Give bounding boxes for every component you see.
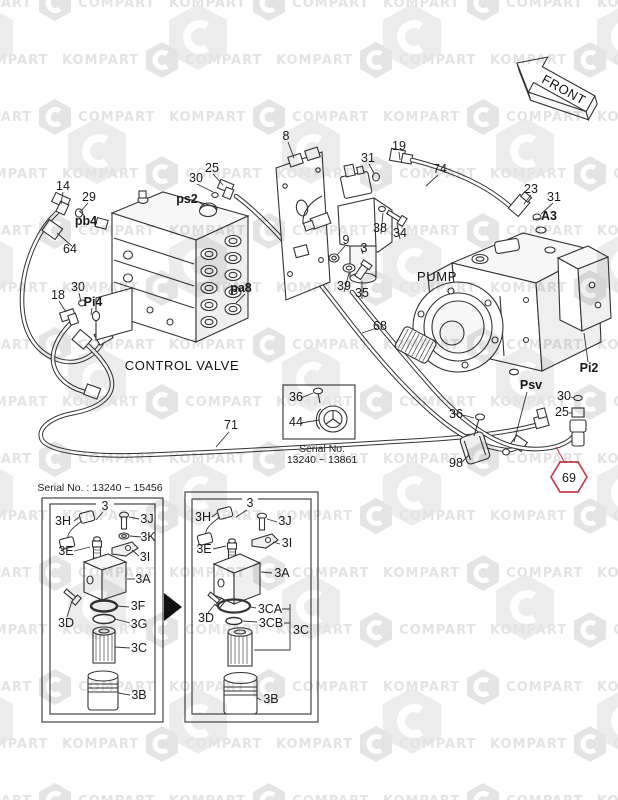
control-valve-drawing [92,179,248,342]
callout-36b: 36 [289,390,303,404]
parts-diagram: FRONT [0,0,618,800]
callout-18: 18 [51,288,65,302]
callout-8: 8 [283,129,290,143]
callout-31b: 31 [547,190,561,204]
port-psv: Psv [520,378,542,392]
box2-label-3b: 3B [263,692,278,706]
callout-68: 68 [373,319,387,333]
callout-98: 98 [449,456,463,470]
box2-label-3: 3 [247,496,254,510]
callout-36a: 36 [449,407,463,421]
port-ps2: ps2 [176,192,198,206]
transition-arrow [164,593,182,621]
pump-caption: PUMP [417,269,457,284]
port-pi4: Pi4 [84,295,103,309]
box2-label-3h: 3H [195,510,211,524]
callout-35: 35 [355,286,369,300]
callout-69: 69 [562,471,576,485]
callout-25a: 25 [205,161,219,175]
callout-30b: 30 [189,171,203,185]
callout-31a: 31 [361,151,375,165]
callout-9: 9 [343,233,350,247]
callout-74: 74 [433,162,447,176]
callout-71: 71 [224,418,238,432]
callout-29: 29 [82,190,96,204]
parts-catalog-page: FRONT [0,0,618,800]
callout-64: 64 [63,242,77,256]
box1-label-3j: 3J [140,512,153,526]
box1-label-3c: 3C [131,641,147,655]
box1-label-3h: 3H [55,514,71,528]
box1-label-3a: 3A [135,572,151,586]
highlighted-callout-69[interactable]: 69 [551,447,587,492]
callout-25b: 25 [555,405,569,419]
box1-label-3b: 3B [131,688,146,702]
box2-label-3i: 3I [282,536,292,550]
box2-label-3j: 3J [278,514,291,528]
hose-74 [373,148,541,220]
port-pa8: pa8 [230,281,252,295]
detail-box-2: 3 3H 3J 3E 3I 3A 3D 3CA 3CB 3C 3B [185,492,318,722]
callout-30c: 30 [557,389,571,403]
serial-inline-line2: 13240 ~ 13861 [287,454,358,466]
callout-14: 14 [56,179,70,193]
detail-box-1: 3 3H 3J 3K 3E 3I 3A 3D 3F 3G 3C 3B [42,498,163,722]
callout-34: 34 [393,226,407,240]
front-arrow: FRONT [504,46,605,130]
callout-3: 3 [361,241,368,255]
callout-44: 44 [289,415,303,429]
box1-label-3d: 3D [58,616,74,630]
callout-39: 39 [337,279,351,293]
control-valve-caption: CONTROL VALVE [125,358,239,373]
box1-label-3k: 3K [140,530,156,544]
callout-30a: 30 [71,280,85,294]
box1-label-3g: 3G [131,617,148,631]
box1-label-3i: 3I [140,550,150,564]
callout-38: 38 [373,221,387,235]
fitting-25-pump [570,395,586,446]
callout-19: 19 [392,139,406,153]
box2-label-3a: 3A [274,566,290,580]
port-a3: A3 [541,209,557,223]
box1-label-3e: 3E [58,544,73,558]
port-pi2: Pi2 [580,361,599,375]
box2-label-3d: 3D [198,611,214,625]
box1-title: Serial No. : 13240 ~ 15456 [37,482,162,494]
port-pb4: pb4 [75,214,97,228]
box2-label-3cb: 3CB [259,616,283,630]
pump-drawing [394,227,611,375]
box2-label-3c: 3C [293,623,309,637]
box1-label-3: 3 [102,499,109,513]
fitting-18 [60,300,86,327]
box1-label-3f: 3F [131,599,146,613]
box2-label-3ca: 3CA [258,602,283,616]
box2-label-3e: 3E [196,542,211,556]
callout-23: 23 [524,182,538,196]
